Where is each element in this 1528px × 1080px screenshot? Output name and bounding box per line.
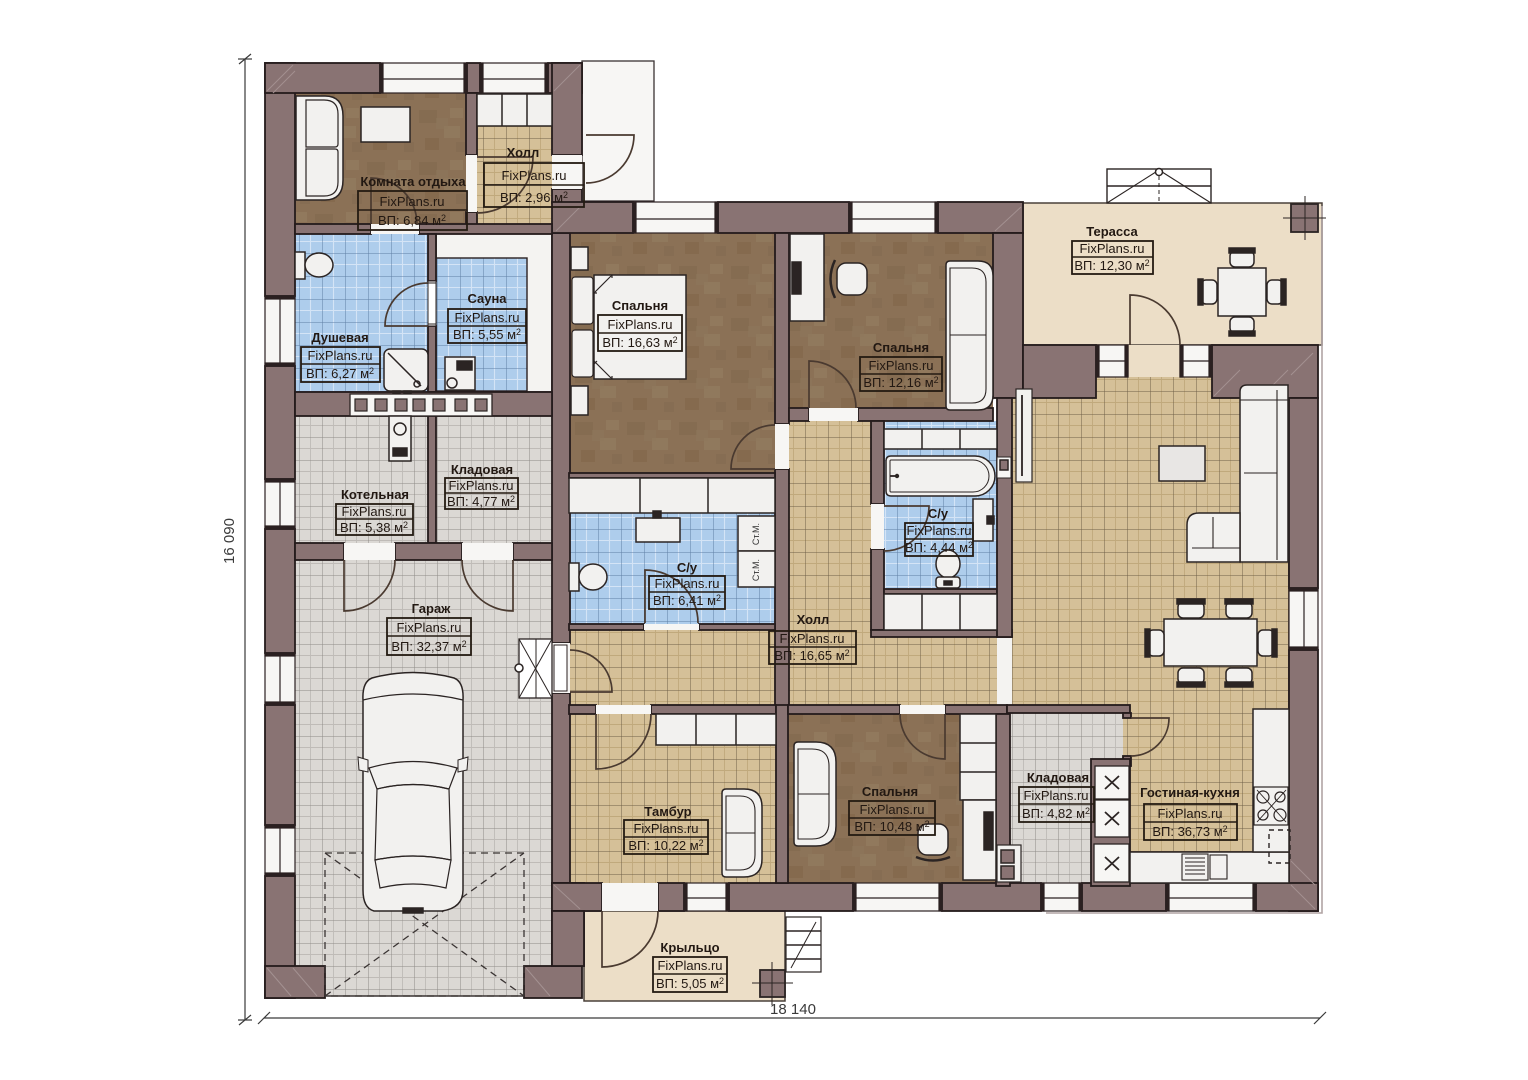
svg-text:FixPlans.ru: FixPlans.ru [657,958,722,973]
svg-text:ВП: 4,82 м2: ВП: 4,82 м2 [1022,806,1090,821]
svg-text:Душевая: Душевая [311,330,368,345]
svg-text:ВП: 6,27 м2: ВП: 6,27 м2 [306,366,374,381]
svg-text:ВП: 12,16 м2: ВП: 12,16 м2 [863,375,938,390]
svg-text:FixPlans.ru: FixPlans.ru [501,168,566,183]
svg-text:FixPlans.ru: FixPlans.ru [454,310,519,325]
svg-text:ВП: 4,77 м2: ВП: 4,77 м2 [447,494,515,509]
svg-text:С/у: С/у [928,506,949,521]
svg-text:Тамбур: Тамбур [644,804,691,819]
svg-text:ВП: 5,05 м2: ВП: 5,05 м2 [656,976,724,991]
svg-text:FixPlans.ru: FixPlans.ru [607,317,672,332]
svg-text:FixPlans.ru: FixPlans.ru [868,358,933,373]
svg-text:FixPlans.ru: FixPlans.ru [379,194,444,209]
svg-text:FixPlans.ru: FixPlans.ru [341,504,406,519]
svg-text:Комната отдыха: Комната отдыха [360,174,466,189]
svg-text:FixPlans.ru: FixPlans.ru [633,821,698,836]
svg-text:ВП: 10,22 м2: ВП: 10,22 м2 [628,838,703,853]
svg-text:Спальня: Спальня [862,784,918,799]
svg-text:FixPlans.ru: FixPlans.ru [1079,241,1144,256]
svg-text:ВП: 36,73 м2: ВП: 36,73 м2 [1152,824,1227,839]
svg-text:Спальня: Спальня [873,340,929,355]
svg-text:Терасса: Терасса [1086,224,1138,239]
svg-text:FixPlans.ru: FixPlans.ru [1023,788,1088,803]
svg-text:FixPlans.ru: FixPlans.ru [1157,806,1222,821]
svg-text:FixPlans.ru: FixPlans.ru [654,576,719,591]
svg-text:ВП: 5,38 м2: ВП: 5,38 м2 [340,520,408,535]
svg-text:С/у: С/у [677,560,698,575]
svg-text:Котельная: Котельная [341,487,409,502]
svg-text:Гараж: Гараж [412,601,452,616]
svg-text:FixPlans.ru: FixPlans.ru [779,631,844,646]
svg-text:ВП: 4,44 м2: ВП: 4,44 м2 [905,540,973,555]
svg-text:ВП: 12,30 м2: ВП: 12,30 м2 [1074,258,1149,273]
svg-text:ВП: 2,96 м2: ВП: 2,96 м2 [500,190,568,205]
svg-text:ВП: 6,41 м2: ВП: 6,41 м2 [653,593,721,608]
svg-text:Сауна: Сауна [467,291,507,306]
svg-text:ВП: 16,63 м2: ВП: 16,63 м2 [602,335,677,350]
svg-text:Ст.М.: Ст.М. [751,559,761,581]
svg-text:FixPlans.ru: FixPlans.ru [396,620,461,635]
svg-text:ВП: 5,55 м2: ВП: 5,55 м2 [453,327,521,342]
svg-text:FixPlans.ru: FixPlans.ru [448,478,513,493]
svg-text:Холл: Холл [507,145,540,160]
svg-text:FixPlans.ru: FixPlans.ru [859,802,924,817]
svg-text:ВП: 16,65 м2: ВП: 16,65 м2 [774,648,849,663]
svg-text:Крыльцо: Крыльцо [660,940,719,955]
svg-text:ВП: 10,48 м2: ВП: 10,48 м2 [854,819,929,834]
svg-text:Кладовая: Кладовая [451,462,513,477]
svg-text:18 140: 18 140 [770,1001,816,1018]
svg-text:Спальня: Спальня [612,298,668,313]
svg-text:ВП: 6,84 м2: ВП: 6,84 м2 [378,213,446,228]
svg-text:Гостиная-кухня: Гостиная-кухня [1140,785,1240,800]
svg-text:FixPlans.ru: FixPlans.ru [906,523,971,538]
svg-text:Кладовая: Кладовая [1027,770,1089,785]
svg-text:16 090: 16 090 [221,518,238,564]
svg-text:Ст.М.: Ст.М. [751,523,761,545]
svg-text:FixPlans.ru: FixPlans.ru [307,348,372,363]
svg-text:Холл: Холл [797,612,830,627]
svg-text:ВП: 32,37 м2: ВП: 32,37 м2 [391,639,466,654]
